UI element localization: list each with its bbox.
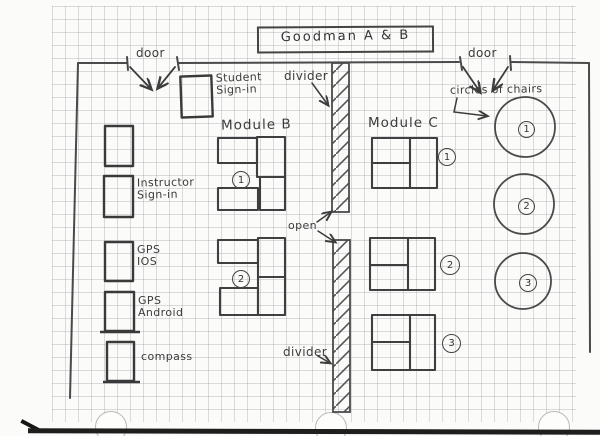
chair-circle-number: 3 bbox=[519, 274, 537, 292]
gps-ios-table bbox=[105, 242, 133, 281]
door-right-label: door bbox=[468, 47, 497, 59]
open-lower-arrow bbox=[318, 231, 335, 242]
equipment-tables bbox=[100, 75, 213, 382]
divider-walls bbox=[332, 63, 350, 412]
module-c-label: Module C bbox=[368, 117, 439, 129]
plan-linework bbox=[0, 0, 600, 436]
room-title: Goodman A & B bbox=[258, 27, 433, 45]
divider-top-label: divider bbox=[284, 70, 328, 82]
open-upper-arrow bbox=[317, 212, 331, 222]
instructor-signin-label: Instructor Sign-in bbox=[137, 177, 195, 202]
module-b-tables bbox=[218, 137, 285, 315]
module-b-group-number: 2 bbox=[232, 270, 250, 288]
chair-circle-number: 2 bbox=[518, 198, 535, 215]
gps-ios-label: GPS IOS bbox=[137, 244, 160, 268]
student-signin-table bbox=[180, 75, 212, 117]
door-left-label: door bbox=[136, 47, 165, 59]
chair-circle-number: 1 bbox=[518, 121, 535, 138]
compass-table bbox=[107, 342, 134, 381]
circles-of-chairs-label: circles of chairs bbox=[450, 83, 543, 97]
gps-android-table bbox=[105, 292, 134, 331]
open-label: open bbox=[288, 220, 317, 232]
circles-of-chairs-arrow bbox=[454, 98, 487, 116]
side-table bbox=[105, 126, 133, 166]
gps-android-label: GPS Android bbox=[138, 295, 183, 319]
module-c-table-number: 2 bbox=[440, 255, 460, 275]
compass-label: compass bbox=[141, 351, 192, 363]
module-c-tables bbox=[370, 138, 437, 370]
module-c-table-number: 1 bbox=[438, 148, 456, 166]
floor-plan-page: Goodman A & B door door Student Sign-in … bbox=[0, 0, 600, 436]
student-signin-label: Student Sign-in bbox=[216, 71, 263, 97]
module-b-group-number: 1 bbox=[232, 171, 250, 189]
divider-top-arrow bbox=[312, 83, 328, 105]
module-b-label: Module B bbox=[221, 118, 292, 131]
room-walls bbox=[70, 56, 590, 398]
divider-bottom-label: divider bbox=[283, 346, 327, 358]
instructor-signin-table bbox=[104, 176, 133, 217]
module-c-table-number: 3 bbox=[442, 334, 461, 353]
